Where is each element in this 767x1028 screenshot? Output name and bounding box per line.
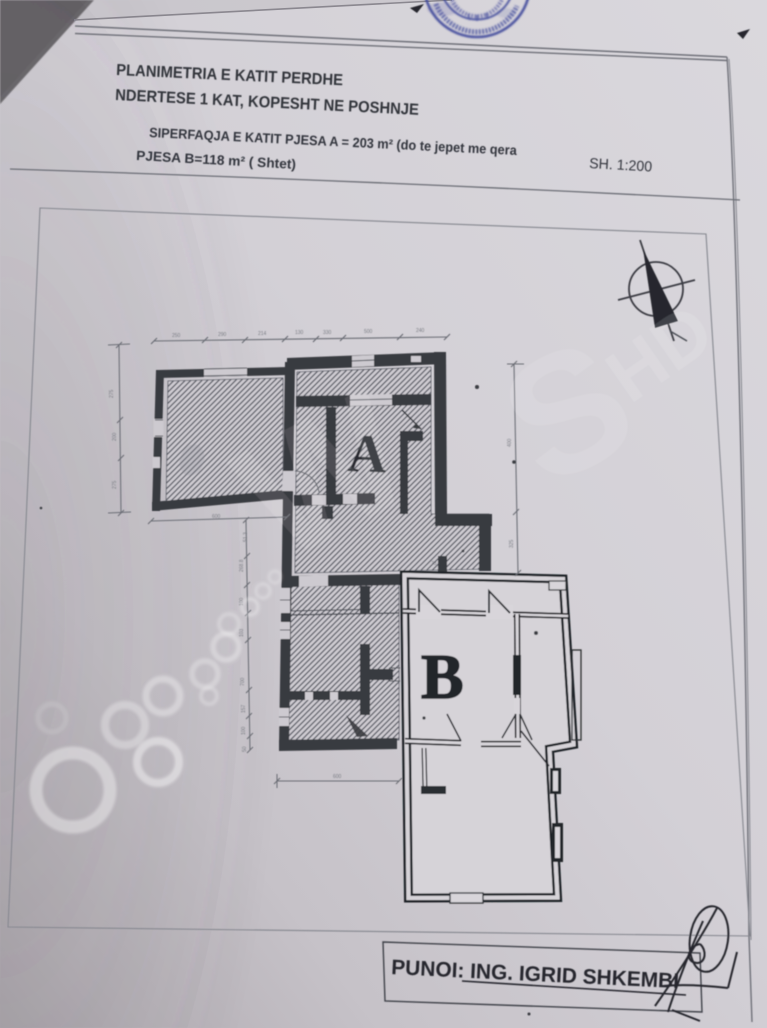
svg-text:268.8: 268.8 [239, 559, 245, 572]
svg-text:700: 700 [240, 677, 246, 686]
svg-text:240: 240 [416, 328, 425, 334]
svg-text:325: 325 [509, 539, 515, 548]
svg-text:600: 600 [212, 514, 221, 520]
svg-text:275: 275 [112, 480, 118, 489]
svg-text:100: 100 [241, 726, 247, 735]
svg-text:103: 103 [239, 628, 245, 637]
svg-text:275: 275 [109, 389, 115, 398]
svg-text:214: 214 [258, 331, 267, 337]
svg-text:290: 290 [218, 332, 227, 338]
svg-text:200: 200 [112, 432, 118, 441]
svg-text:600: 600 [333, 774, 342, 780]
svg-text:400: 400 [507, 438, 513, 447]
svg-text:330: 330 [323, 330, 332, 336]
svg-text:73: 73 [431, 561, 437, 567]
svg-text:51.3: 51.3 [243, 532, 249, 542]
svg-text:157: 157 [241, 704, 247, 713]
svg-text:50: 50 [242, 746, 248, 752]
svg-text:130: 130 [295, 330, 304, 336]
svg-text:500: 500 [364, 329, 373, 335]
svg-text:250: 250 [172, 333, 181, 339]
svg-text:B: B [421, 641, 464, 712]
